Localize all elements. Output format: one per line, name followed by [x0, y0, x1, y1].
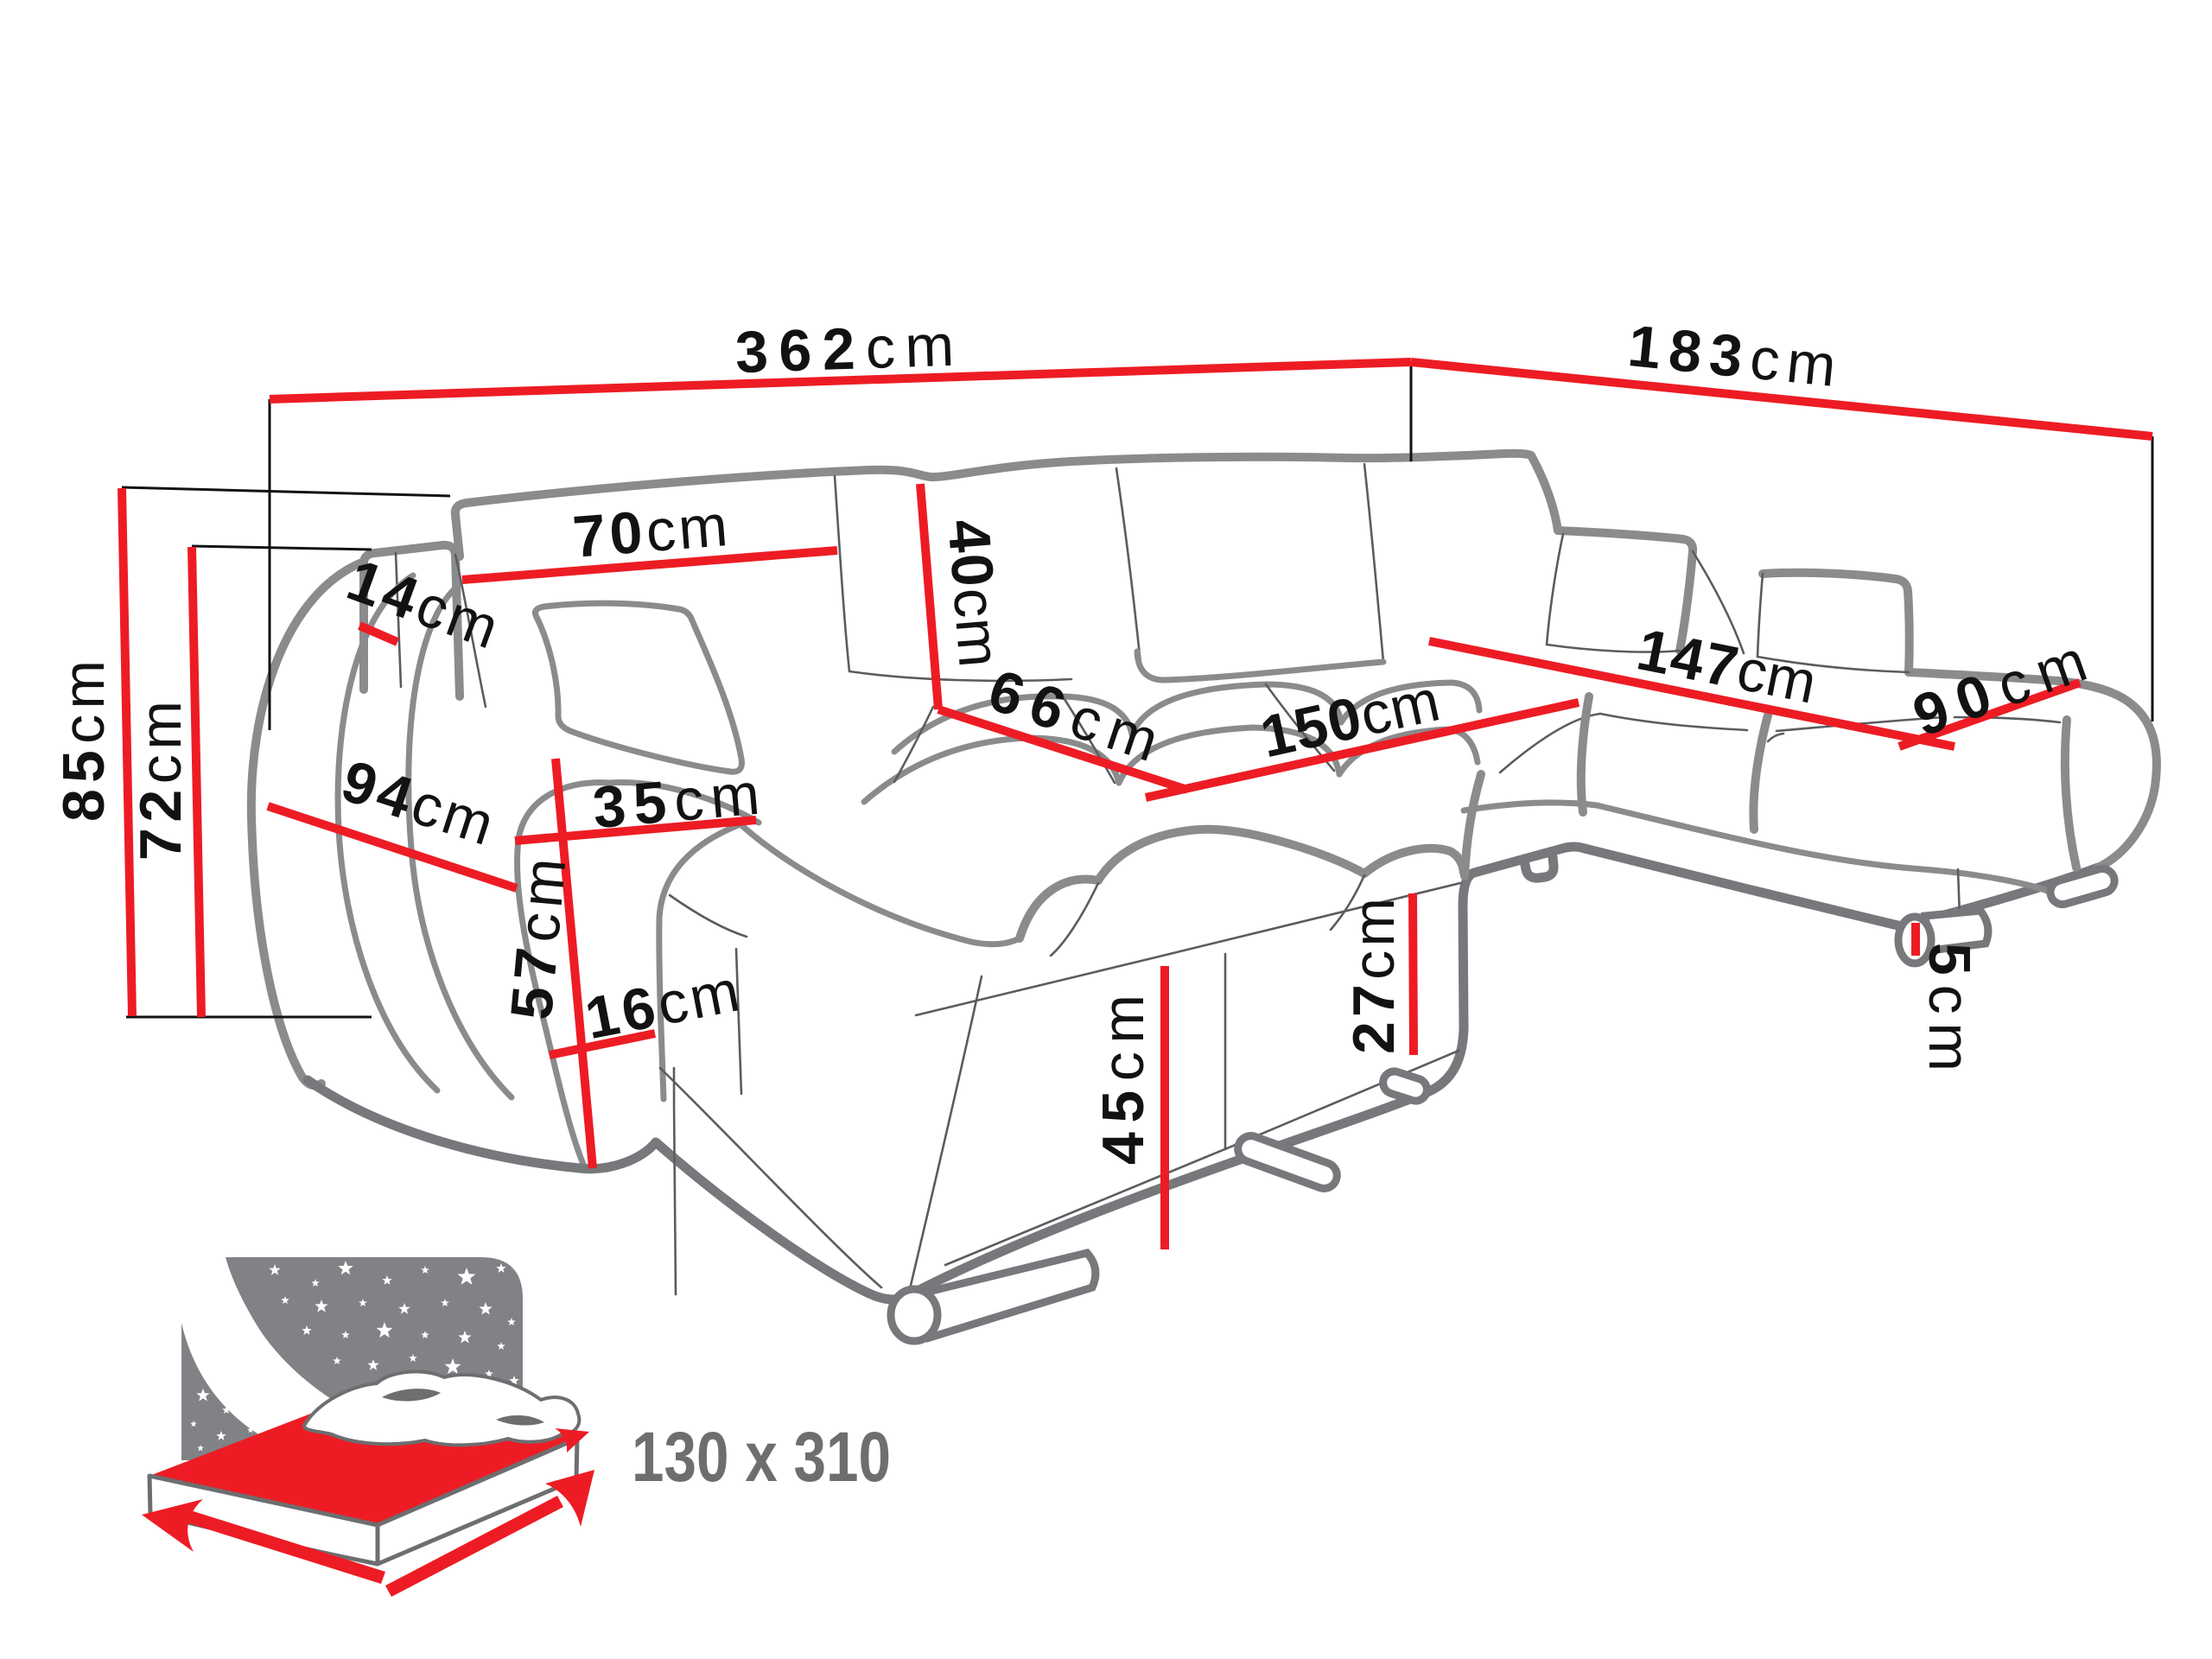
svg-text:45cm: 45cm	[1090, 995, 1156, 1165]
svg-text:70cm: 70cm	[570, 493, 728, 570]
svg-text:5cm: 5cm	[1916, 943, 1982, 1071]
svg-text:85cm: 85cm	[51, 661, 117, 822]
svg-text:72cm: 72cm	[128, 702, 194, 861]
svg-text:27cm: 27cm	[1341, 899, 1407, 1054]
svg-text:130 x 310: 130 x 310	[632, 1418, 891, 1497]
svg-text:40cm: 40cm	[935, 517, 1012, 669]
